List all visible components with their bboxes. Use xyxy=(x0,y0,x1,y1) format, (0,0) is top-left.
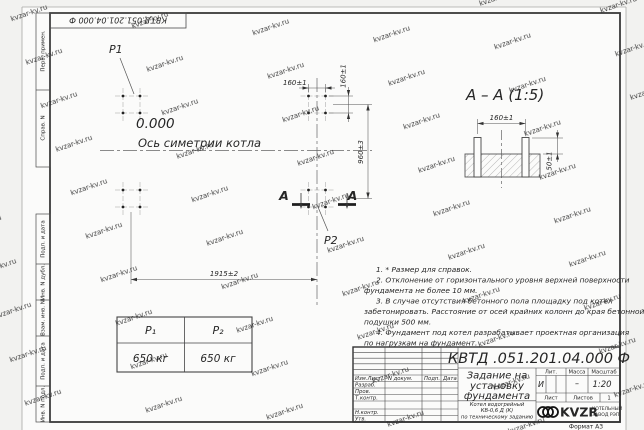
p1-load-label: P1 xyxy=(109,43,123,56)
doc-subtitle-line: по техническому заданию xyxy=(461,415,534,421)
note-line: 4. Фундамент под котел разрабатывает про… xyxy=(376,328,630,337)
col-izm-list: Изм.Лист xyxy=(355,376,382,382)
note-line: 2. Отклонение от горизонтального уровня … xyxy=(376,276,630,285)
col-n-dokum: N докум. xyxy=(388,376,413,382)
mass-header: Масса xyxy=(569,369,586,375)
section-dim-50-value: 50±1 xyxy=(546,151,554,170)
note-line: по нагрузкам на фундамент. xyxy=(364,339,477,348)
section-letter-right: А xyxy=(347,188,358,203)
note-line: 3. В случае отсутствия бетонного пола пл… xyxy=(376,297,613,306)
section-dim-160-value: 160±1 xyxy=(490,114,514,122)
note-line: фундамента не более 10 мм. xyxy=(364,286,478,295)
anchor-bolt-right xyxy=(522,138,529,178)
row-prov: Пров. xyxy=(355,389,370,395)
col-data: Дата xyxy=(442,376,457,382)
scale-value: 1:20 xyxy=(592,380,611,390)
section-letter-left: А xyxy=(278,188,289,203)
listov-label: Листов xyxy=(573,396,593,402)
lit-header: Лит. xyxy=(545,369,558,375)
doc-subtitle-line: КВ-0,6 Д (К) xyxy=(481,408,513,414)
elevation-mark: 0.000 xyxy=(136,116,175,132)
load-table-value-p2: 650 кг xyxy=(200,353,236,365)
load-table-value-p1: 650 кг xyxy=(133,353,169,365)
note-line: подушки 500 мм. xyxy=(364,318,431,327)
mass-value: – xyxy=(575,379,579,388)
row-razrab: Разраб. xyxy=(355,383,376,389)
top-stamp-doc-number: КВТД.051.201.04.000 Ф xyxy=(69,16,167,25)
load-table-header-p1: P₁ xyxy=(145,324,156,337)
dim-960-value: 960±3 xyxy=(357,140,365,164)
row-n-kontr: Н.контр. xyxy=(355,410,379,416)
lit-value: И xyxy=(538,380,544,389)
format-label: Формат А3 xyxy=(569,424,603,430)
doc-title-line: фундамента xyxy=(464,391,530,402)
note-line: забетонировать. Расстояние от осей крайн… xyxy=(364,307,644,316)
margin-label-inv-n-podl: Инв. N подл. xyxy=(41,386,47,423)
title-block-doc-number: КВТД .051.201.04.000 Ф xyxy=(448,351,630,367)
dim-160-side-value: 160±1 xyxy=(340,64,348,88)
col-podp: Подп. xyxy=(424,376,440,382)
section-view-title: А – А (1:5) xyxy=(465,86,544,104)
kvzr-logo-caption-line: КОТЕЛЬНЫЙ xyxy=(592,405,622,412)
note-line: 1. * Размер для справок. xyxy=(376,265,472,274)
listov-value: 1 xyxy=(607,396,610,402)
margin-label-vzam-inv-n: Взам. инв. N xyxy=(41,300,47,336)
margin-label-sprav-n: Справ. N xyxy=(41,115,47,140)
row-utv: Утв. xyxy=(355,417,366,423)
margin-label-inv-n-dubl: Инв. N дубл. xyxy=(41,264,47,300)
axis-symmetry-label: Ось симетрии котла xyxy=(138,136,261,150)
anchor-bolt-left xyxy=(474,138,481,178)
margin-label-perv-primen: Перв. примен. xyxy=(41,30,47,72)
dim-160-top-value: 160±1 xyxy=(283,79,307,87)
p2-load-label: P2 xyxy=(324,234,338,247)
kvzr-logo-caption-line: ЗАВОД РЭП xyxy=(592,412,619,418)
dim-1915-value: 1915±2 xyxy=(210,270,239,278)
row-t-kontr: Т.контр. xyxy=(355,396,378,402)
drawing-sheet: kvzar-kv.ru Перв. примен. Справ. N Подп.… xyxy=(0,0,644,430)
notes-block: 1. * Размер для справок. 2. Отклонение о… xyxy=(364,265,644,348)
load-table-header-p2: P₂ xyxy=(212,324,224,337)
margin-label-podp-data-bottom: Подп. и дата xyxy=(41,342,47,379)
margin-label-podp-data-top: Подп. и дата xyxy=(41,220,47,257)
scale-header: Масштаб xyxy=(591,369,616,375)
doc-title-line: Задание на xyxy=(467,371,528,382)
list-label: Лист xyxy=(544,396,557,402)
